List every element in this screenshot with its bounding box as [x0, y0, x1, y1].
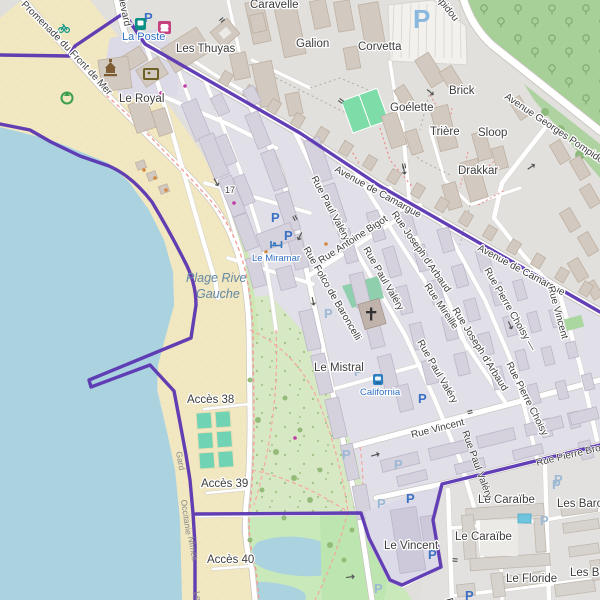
svg-text:P: P [377, 496, 386, 511]
svg-text:Drakkar: Drakkar [458, 165, 498, 177]
svg-text:Le Miramar: Le Miramar [252, 253, 300, 264]
svg-text:Les Ba: Les Ba [570, 567, 600, 579]
svg-text:Gauche: Gauche [196, 287, 240, 301]
svg-text:P: P [374, 581, 383, 596]
svg-text:Les Thuyas: Les Thuyas [176, 43, 235, 55]
svg-text:Le Floride: Le Floride [506, 573, 557, 585]
svg-text:Accès 38: Accès 38 [187, 394, 234, 406]
svg-text:California: California [360, 387, 401, 398]
svg-text:Corvetta: Corvetta [358, 41, 402, 53]
svg-text:P: P [406, 491, 415, 506]
svg-text:Sloop: Sloop [478, 127, 507, 139]
svg-text:P: P [342, 447, 351, 462]
svg-text:Le Vincent: Le Vincent [384, 540, 439, 552]
svg-text:Galion: Galion [296, 38, 329, 50]
svg-text:P: P [554, 472, 563, 487]
svg-text:La Poste: La Poste [122, 31, 165, 43]
svg-text:17: 17 [225, 185, 235, 195]
svg-text:Le Caraïbe: Le Caraïbe [455, 531, 512, 543]
svg-text:Accès 40: Accès 40 [207, 554, 254, 566]
svg-text:Les Baron: Les Baron [557, 498, 600, 510]
svg-text:P: P [540, 513, 549, 528]
svg-text:Accès 39: Accès 39 [201, 478, 248, 490]
svg-text:Le Royal: Le Royal [119, 93, 164, 105]
svg-text:P: P [271, 210, 280, 225]
svg-text:Le Mistral: Le Mistral [314, 362, 364, 374]
svg-text:Brick: Brick [449, 85, 475, 97]
svg-text:P: P [465, 588, 474, 600]
svg-text:P: P [413, 4, 430, 34]
svg-text:P: P [418, 391, 427, 406]
svg-text:P: P [324, 306, 333, 321]
svg-text:Plage Rive: Plage Rive [186, 271, 246, 285]
svg-text:Goélette: Goélette [390, 102, 433, 114]
svg-text:P: P [394, 457, 403, 472]
svg-text:P: P [284, 228, 293, 243]
svg-text:Caravelle: Caravelle [250, 0, 299, 11]
svg-text:Trière: Trière [430, 126, 460, 138]
